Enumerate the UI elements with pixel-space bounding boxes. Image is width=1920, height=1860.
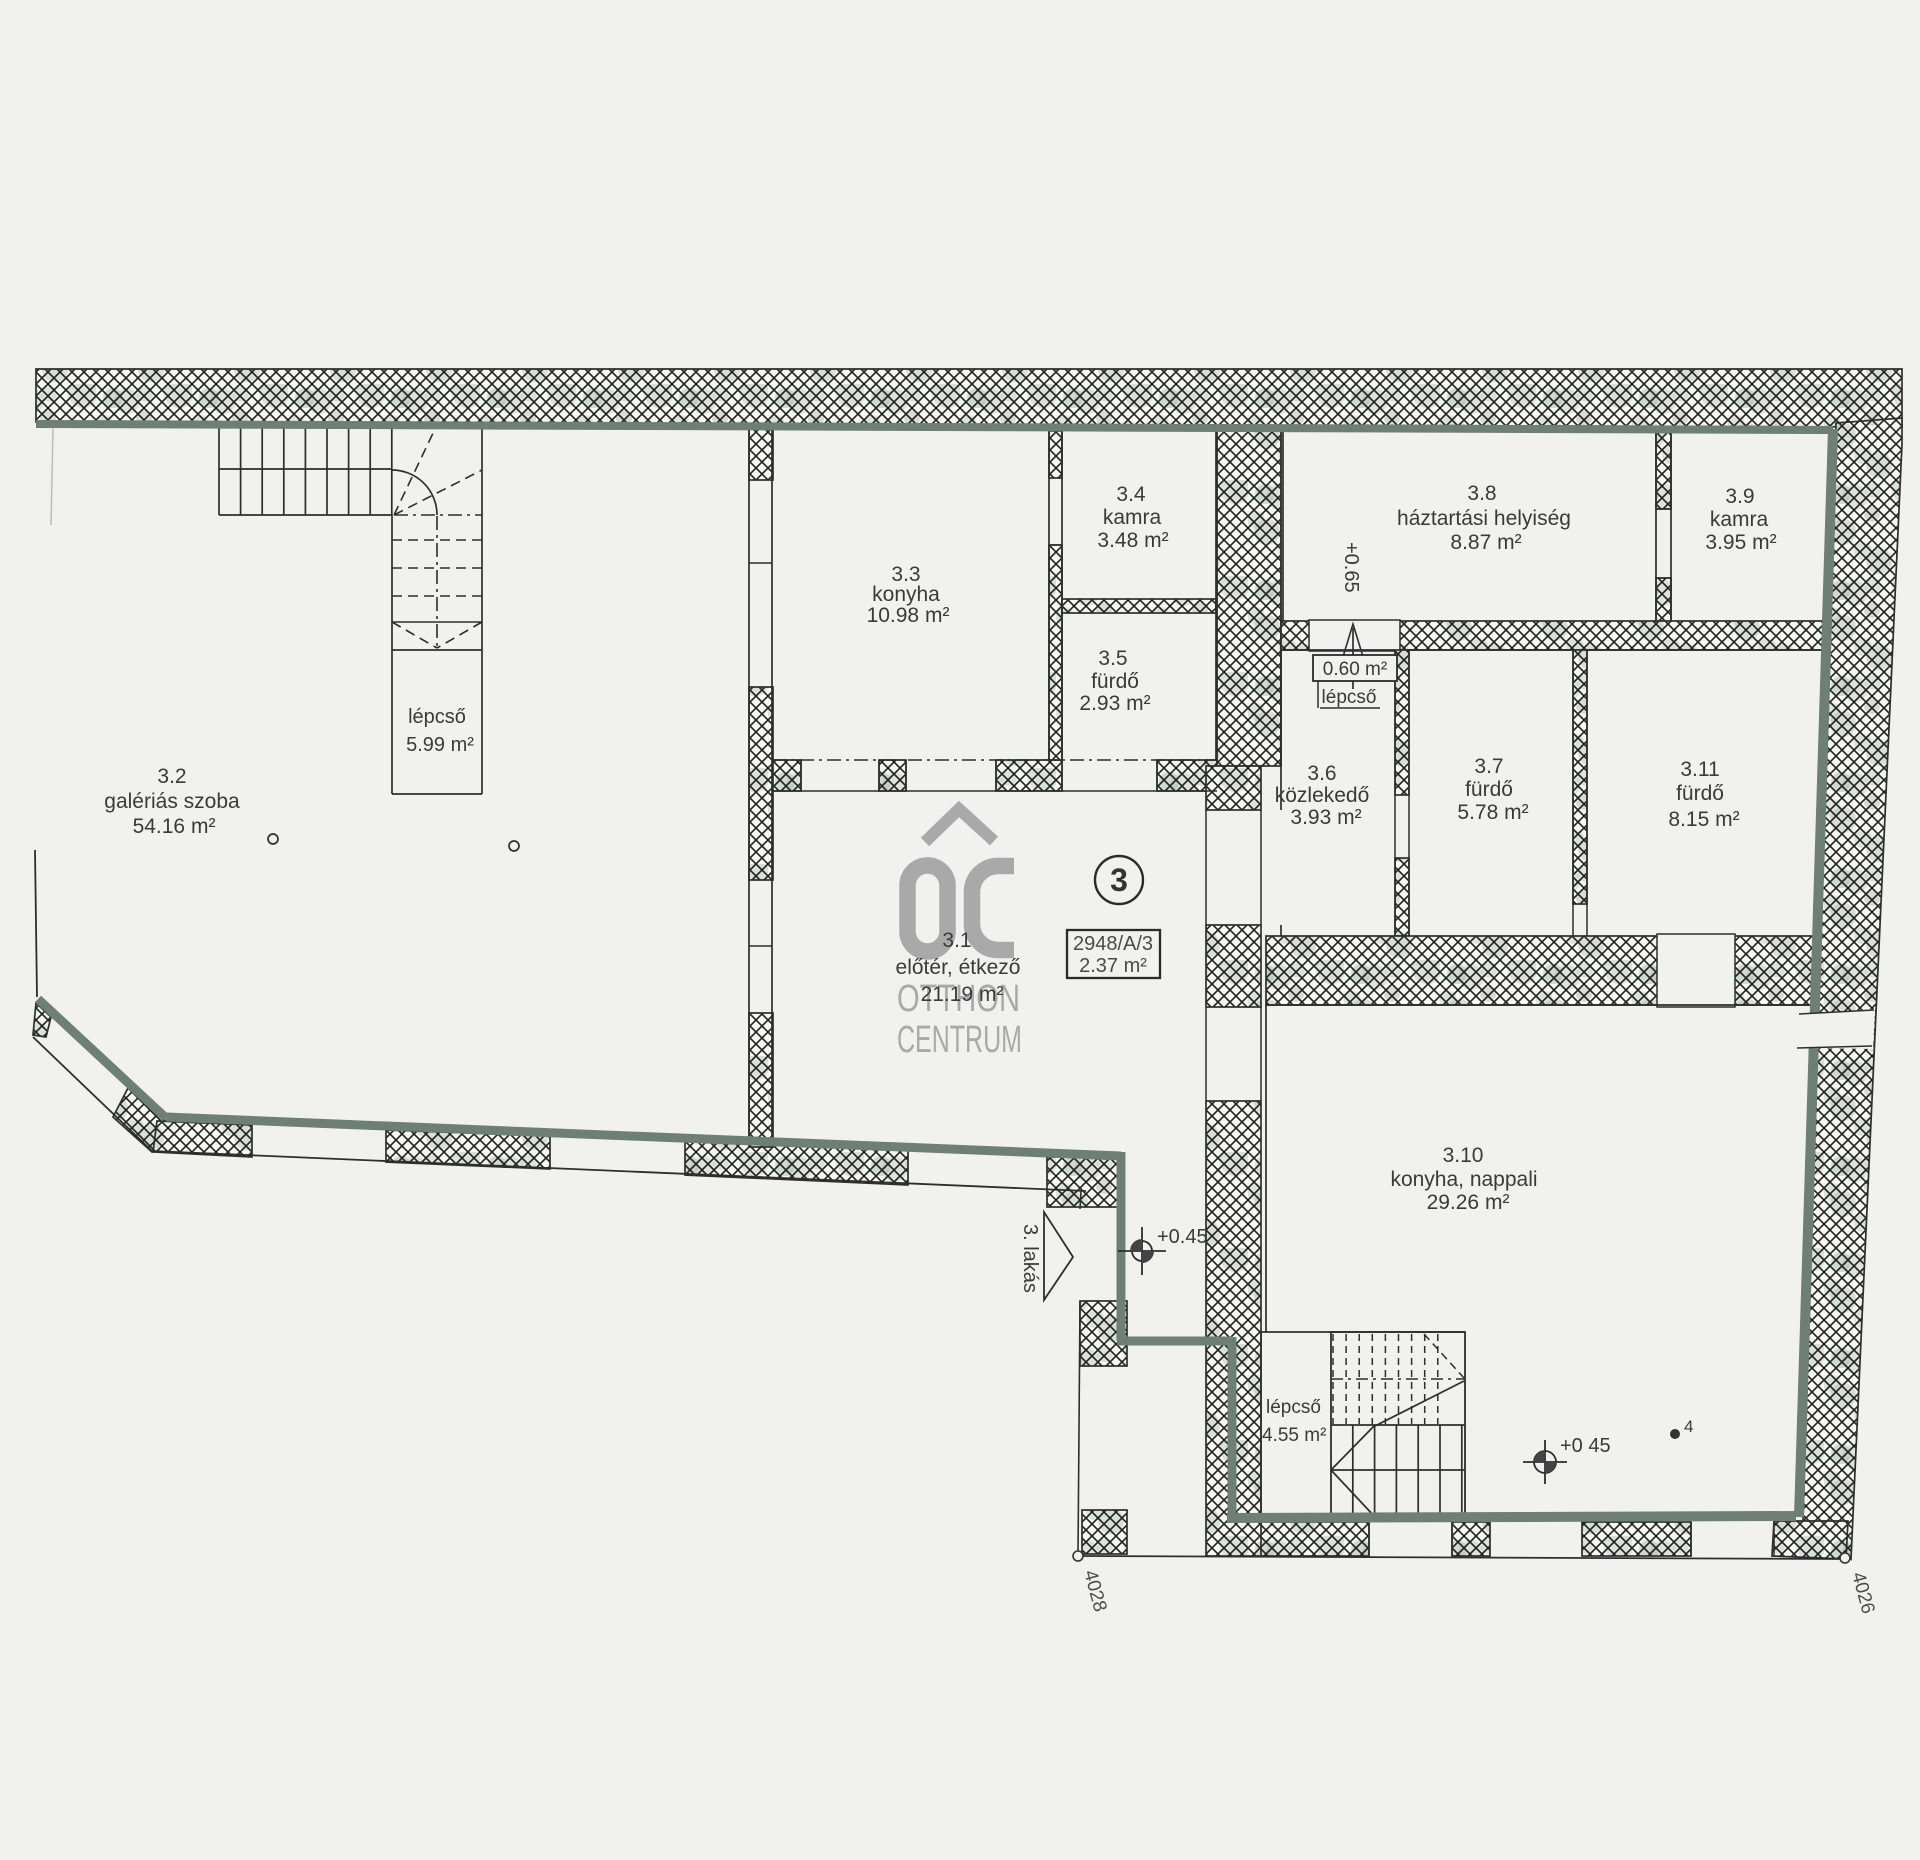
- svg-text:3.9: 3.9: [1725, 485, 1754, 508]
- svg-text:kamra: kamra: [1103, 506, 1162, 529]
- svg-text:+0.65: +0.65: [1340, 542, 1362, 593]
- svg-text:8.15 m²: 8.15 m²: [1668, 808, 1739, 831]
- svg-text:közlekedő: közlekedő: [1275, 784, 1370, 807]
- svg-text:3.11: 3.11: [1680, 758, 1719, 781]
- svg-text:2.93 m²: 2.93 m²: [1079, 692, 1150, 715]
- svg-text:3.93 m²: 3.93 m²: [1290, 806, 1361, 829]
- svg-text:29.26 m²: 29.26 m²: [1427, 1191, 1510, 1214]
- svg-text:konyha: konyha: [872, 583, 940, 606]
- svg-text:lépcső: lépcső: [1266, 1397, 1321, 1418]
- svg-text:21.19 m²: 21.19 m²: [921, 983, 1004, 1006]
- svg-text:3: 3: [1110, 862, 1128, 898]
- svg-text:3.10: 3.10: [1443, 1144, 1484, 1167]
- svg-text:3.5: 3.5: [1098, 647, 1127, 670]
- svg-text:5.78 m²: 5.78 m²: [1457, 801, 1528, 824]
- svg-text:0.60 m²: 0.60 m²: [1323, 659, 1387, 680]
- svg-text:3.1: 3.1: [942, 929, 971, 952]
- svg-text:lépcső: lépcső: [1322, 687, 1377, 708]
- svg-text:4.55 m²: 4.55 m²: [1262, 1425, 1326, 1446]
- svg-text:3. lakás: 3. lakás: [1019, 1224, 1041, 1293]
- svg-text:4: 4: [1684, 1417, 1693, 1436]
- svg-text:lépcső: lépcső: [408, 706, 466, 728]
- svg-text:3.8: 3.8: [1467, 482, 1496, 505]
- svg-text:3.7: 3.7: [1474, 755, 1503, 778]
- svg-text:3.48 m²: 3.48 m²: [1097, 529, 1168, 552]
- svg-text:fürdő: fürdő: [1091, 670, 1139, 693]
- svg-text:konyha, nappali: konyha, nappali: [1390, 1168, 1537, 1191]
- svg-text:3.2: 3.2: [157, 765, 186, 788]
- svg-text:kamra: kamra: [1710, 508, 1769, 531]
- svg-text:+0 45: +0 45: [1560, 1435, 1611, 1457]
- svg-text:2.37 m²: 2.37 m²: [1079, 955, 1147, 977]
- svg-text:2948/A/3: 2948/A/3: [1073, 933, 1153, 955]
- svg-text:háztartási helyiség: háztartási helyiség: [1397, 507, 1571, 530]
- svg-text:fürdő: fürdő: [1676, 782, 1724, 805]
- svg-text:3.4: 3.4: [1116, 483, 1146, 506]
- svg-text:5.99 m²: 5.99 m²: [406, 734, 474, 756]
- svg-text:CENTRUM: CENTRUM: [897, 1019, 1022, 1061]
- svg-text:54.16 m²: 54.16 m²: [133, 815, 216, 838]
- svg-text:3.95 m²: 3.95 m²: [1705, 531, 1776, 554]
- svg-text:fürdő: fürdő: [1465, 778, 1513, 801]
- svg-text:8.87 m²: 8.87 m²: [1450, 531, 1521, 554]
- svg-text:3.6: 3.6: [1307, 762, 1336, 785]
- svg-text:+0.45: +0.45: [1157, 1226, 1208, 1248]
- svg-text:előtér, étkező: előtér, étkező: [896, 956, 1021, 979]
- svg-text:galériás szoba: galériás szoba: [104, 790, 240, 813]
- svg-text:10.98 m²: 10.98 m²: [867, 604, 950, 627]
